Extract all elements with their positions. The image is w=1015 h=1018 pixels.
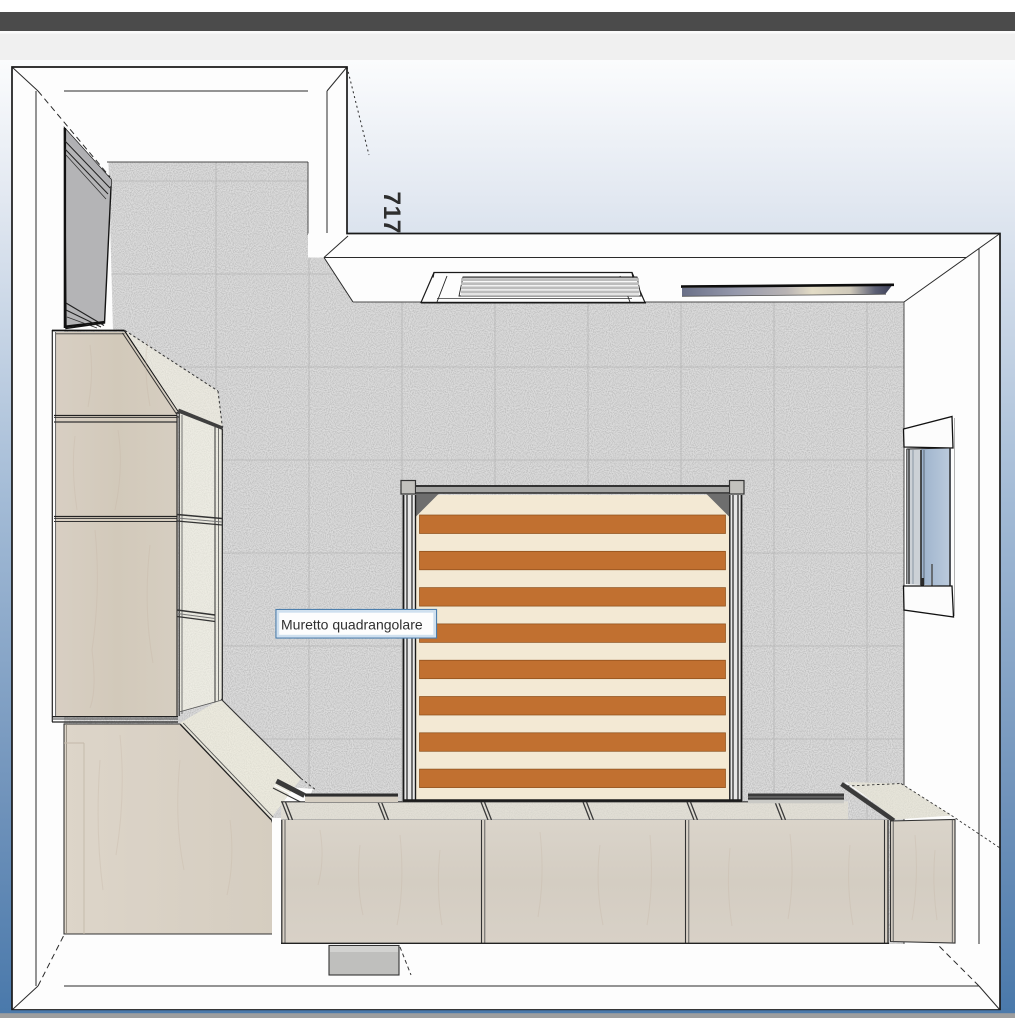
svg-text:717: 717 [378, 192, 405, 234]
svg-text:Muretto quadrangolare: Muretto quadrangolare [281, 617, 423, 633]
